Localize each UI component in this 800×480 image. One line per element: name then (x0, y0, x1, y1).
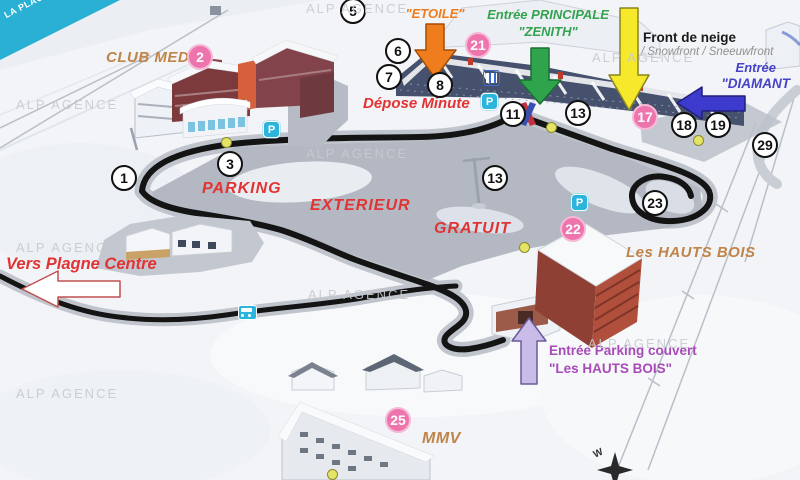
map-marker-21: 21 (465, 32, 491, 58)
parking-icon-3: P (571, 194, 588, 211)
vers-plagne-centre-label: Vers Plagne Centre (6, 256, 157, 273)
alp-agence-watermark-1: ALP AGENCE (306, 1, 408, 16)
club-med-label: CLUB MED (106, 50, 189, 66)
entree-principale-label-2: "ZENITH" (486, 25, 610, 39)
parking-label-1: PARKING (202, 181, 282, 198)
yellow-dot-4 (519, 242, 530, 253)
map-marker-1: 1 (111, 165, 137, 191)
resort-map: CLUB MED Entrée "ETOILE" Entrée PRINCIPA… (0, 0, 800, 480)
map-marker-29: 29 (752, 132, 778, 158)
parking-icon-1: P (263, 121, 280, 138)
alp-agence-watermark-7: ALP AGENCE (588, 336, 690, 351)
map-marker-17: 17 (632, 104, 658, 130)
mmv-buildings (278, 354, 462, 480)
map-marker-8: 8 (427, 72, 453, 98)
bus-stop-icon (238, 305, 257, 320)
map-marker-6: 6 (385, 38, 411, 64)
mmv-label: MMV (422, 431, 461, 448)
yellow-dot-5 (327, 469, 338, 480)
map-marker-13: 13 (565, 100, 591, 126)
alp-agence-watermark-4: ALP AGENCE (306, 146, 408, 161)
parking-icon-2: P (481, 93, 498, 110)
entree-etoile-label-1: Entrée (400, 0, 470, 3)
alp-agence-watermark-2: ALP AGENCE (16, 97, 118, 112)
alp-agence-watermark-5: ALP AGENCE (16, 240, 118, 255)
parking-label-2: EXTERIEUR (310, 198, 411, 215)
front-de-neige-label: Front de neige (643, 31, 736, 45)
depose-minute-label: Dépose Minute (363, 96, 470, 112)
entree-diamant-label-1: Entrée (712, 61, 776, 75)
yellow-dot-3 (693, 135, 704, 146)
entree-diamant-label-2: "DIAMANT (690, 77, 790, 91)
parking-label-3: GRATUIT (434, 221, 511, 238)
map-marker-23: 23 (642, 190, 668, 216)
ticket-office-icon (483, 70, 500, 86)
alp-agence-watermark-3: ALP AGENCE (592, 50, 694, 65)
map-marker-11: 11 (500, 101, 526, 127)
map-marker-22: 22 (560, 216, 586, 242)
map-marker-7: 7 (376, 64, 402, 90)
yellow-dot-1 (221, 137, 232, 148)
map-marker-3: 3 (217, 151, 243, 177)
yellow-dot-2 (546, 122, 557, 133)
map-marker-18: 18 (671, 112, 697, 138)
map-marker-2: 2 (187, 44, 213, 70)
les-hauts-bois-label: Les HAUTS BOIS (626, 245, 756, 261)
map-marker-19: 19 (705, 112, 731, 138)
map-marker-13: 13 (482, 165, 508, 191)
entree-principale-label-1: Entrée PRINCIPALE (486, 8, 610, 22)
alp-agence-watermark-8: ALP AGENCE (16, 386, 118, 401)
map-marker-25: 25 (385, 407, 411, 433)
alp-agence-watermark-6: ALP AGENCE (308, 287, 410, 302)
entree-parking-couvert-label-2: "Les HAUTS BOIS" (549, 362, 672, 376)
